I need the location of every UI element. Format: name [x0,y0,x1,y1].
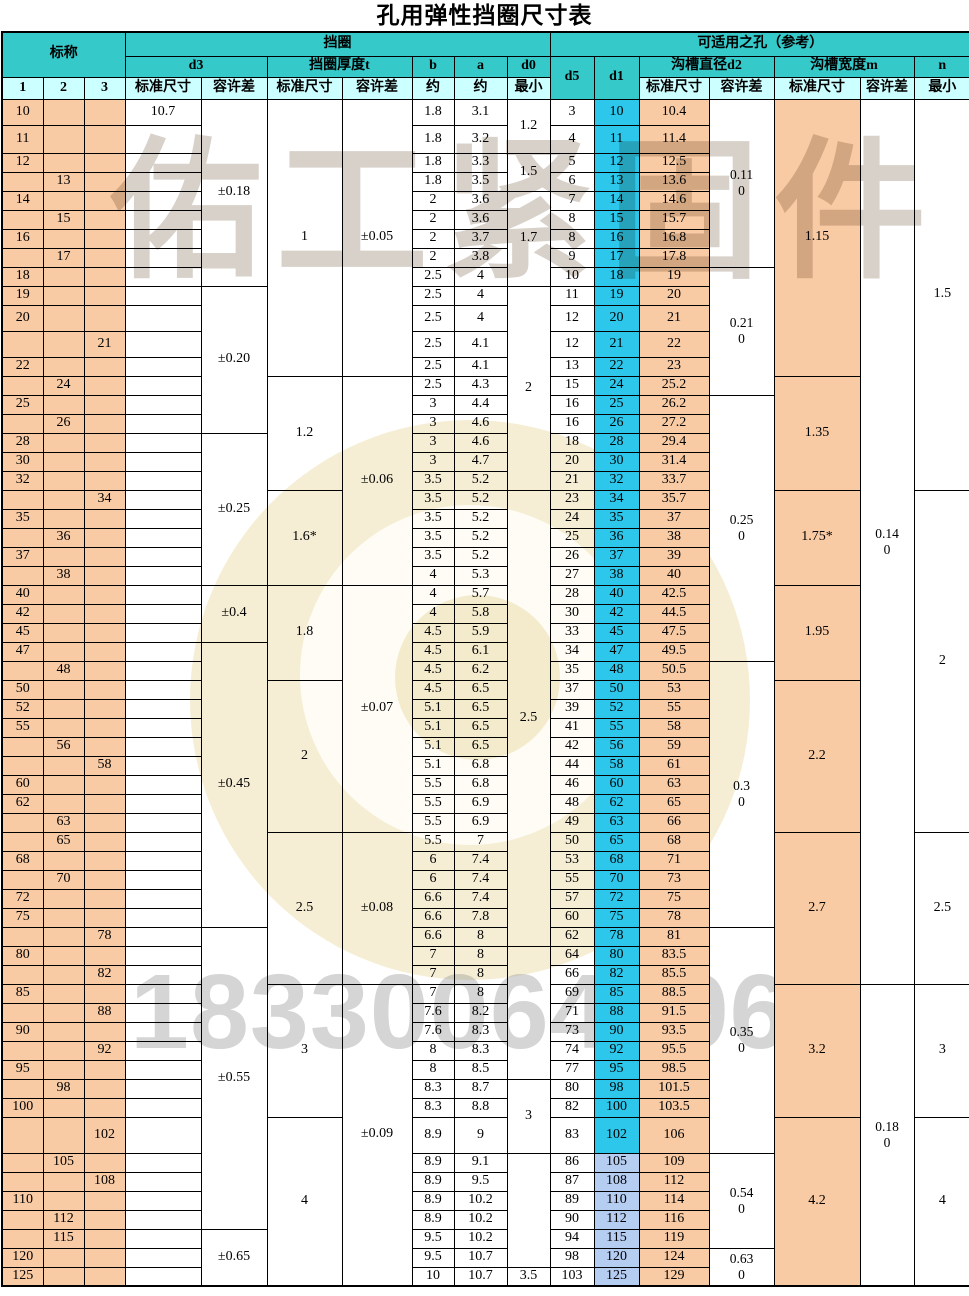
cell-a: 3.6 [454,210,507,229]
cell-a: 10.2 [454,1210,507,1229]
cell-a: 6.9 [454,794,507,813]
cell-d5: 82 [550,1098,594,1117]
cell-b: 8.9 [412,1153,454,1172]
cell-d3-tolerance: ±0.20 [201,286,267,433]
cell-d3-std [125,331,201,357]
cell-d5: 8 [550,229,594,248]
header-leaf-13: 容许差 [860,77,914,99]
cell-d2-std: 112 [639,1172,709,1191]
cell-d2-std: 16.8 [639,229,709,248]
cell-thickness-std: 3 [267,984,342,1117]
cell-nominal-3 [84,604,125,623]
cell-nominal-1: 35 [2,509,43,528]
cell-nominal-2 [43,604,84,623]
cell-d5: 49 [550,813,594,832]
header-leaf-7: 约 [412,77,454,99]
cell-b: 3 [412,433,454,452]
cell-d2-std: 73 [639,870,709,889]
cell-d2-std: 53 [639,680,709,699]
cell-d2-std: 20 [639,286,709,305]
cell-a: 6.5 [454,680,507,699]
cell-nominal-2 [43,946,84,965]
cell-d1: 11 [594,125,639,153]
cell-b: 2.5 [412,357,454,376]
cell-d0-min: 3 [507,1079,550,1153]
cell-nominal-1: 42 [2,604,43,623]
cell-m-std: 1.15 [774,99,860,376]
cell-d5: 25 [550,528,594,547]
header-sub-1: 挡圈厚度t [267,56,412,77]
cell-d2-tolerance: 0.35 0 [709,927,774,1153]
cell-d2-std: 63 [639,775,709,794]
cell-nominal-2 [43,699,84,718]
cell-b: 10 [412,1267,454,1286]
cell-nominal-3 [84,191,125,210]
cell-b: 3 [412,414,454,433]
cell-d1: 56 [594,737,639,756]
cell-nominal-2: 112 [43,1210,84,1229]
header-sub-6: d1 [594,56,639,99]
cell-d3-std [125,1210,201,1229]
cell-nominal-3 [84,775,125,794]
cell-d1: 34 [594,490,639,509]
cell-d2-std: 35.7 [639,490,709,509]
cell-d3-std [125,832,201,851]
header-leaf-14: 最小 [914,77,969,99]
cell-nominal-2 [43,433,84,452]
cell-d3-tolerance: ±0.18 [201,99,267,286]
cell-d3-std [125,528,201,547]
cell-nominal-1 [2,1229,43,1248]
cell-d3-std [125,1041,201,1060]
cell-thickness-tolerance: ±0.07 [342,585,412,832]
cell-d2-std: 129 [639,1267,709,1286]
cell-d3-std [125,1267,201,1286]
cell-a: 3.3 [454,153,507,172]
cell-nominal-3 [84,528,125,547]
cell-nominal-1: 120 [2,1248,43,1267]
cell-nominal-1: 85 [2,984,43,1003]
cell-nominal-1: 100 [2,1098,43,1117]
cell-d5: 10 [550,267,594,286]
cell-thickness-tolerance: ±0.09 [342,984,412,1286]
cell-b: 5.5 [412,813,454,832]
cell-d5: 42 [550,737,594,756]
cell-thickness-std: 1.8 [267,585,342,680]
cell-b: 3.5 [412,509,454,528]
cell-a: 4 [454,267,507,286]
cell-nominal-2 [43,984,84,1003]
cell-nominal-2 [43,1098,84,1117]
cell-nominal-1 [2,1079,43,1098]
header-leaf-8: 约 [454,77,507,99]
cell-nominal-3: 78 [84,927,125,946]
cell-d3-std [125,908,201,927]
cell-a: 3.8 [454,248,507,267]
cell-d3-std [125,870,201,889]
cell-d1: 82 [594,965,639,984]
cell-thickness-tolerance: ±0.06 [342,376,412,585]
cell-b: 6.6 [412,889,454,908]
header-leaf-4: 容许差 [201,77,267,99]
cell-b: 2 [412,191,454,210]
cell-d2-tolerance: 0.21 0 [709,267,774,395]
cell-d2-std: 59 [639,737,709,756]
cell-nominal-3 [84,1248,125,1267]
cell-nominal-2 [43,395,84,414]
cell-d2-std: 85.5 [639,965,709,984]
header-leaf-10: 标准尺寸 [639,77,709,99]
cell-nominal-2 [43,927,84,946]
cell-d5: 3 [550,99,594,125]
cell-b: 5.1 [412,699,454,718]
cell-a: 3.1 [454,99,507,125]
cell-m-std: 1.75* [774,490,860,585]
cell-nominal-1: 14 [2,191,43,210]
cell-d3-std [125,604,201,623]
cell-d1: 15 [594,210,639,229]
cell-d5: 41 [550,718,594,737]
cell-nominal-1 [2,813,43,832]
cell-nominal-2 [43,965,84,984]
cell-nominal-2 [43,490,84,509]
cell-n-min: 2.5 [914,832,969,984]
cell-d1: 98 [594,1079,639,1098]
cell-nominal-3 [84,566,125,585]
cell-a: 3.2 [454,125,507,153]
cell-nominal-1: 37 [2,547,43,566]
cell-d3-std [125,718,201,737]
cell-d5: 7 [550,191,594,210]
cell-d3-std [125,1003,201,1022]
cell-b: 7.6 [412,1022,454,1041]
cell-nominal-3 [84,718,125,737]
cell-b: 6.6 [412,927,454,946]
cell-d3-tolerance: ±0.65 [201,1229,267,1286]
cell-d3-std [125,191,201,210]
cell-a: 10.2 [454,1191,507,1210]
cell-nominal-3: 108 [84,1172,125,1191]
cell-a: 6.8 [454,775,507,794]
cell-d1: 65 [594,832,639,851]
cell-b: 3.5 [412,490,454,509]
cell-nominal-2 [43,1172,84,1191]
cell-nominal-2 [43,1003,84,1022]
cell-nominal-2 [43,286,84,305]
cell-d2-std: 10.4 [639,99,709,125]
cell-b: 9.5 [412,1248,454,1267]
cell-a: 4.1 [454,331,507,357]
cell-a: 6.5 [454,699,507,718]
cell-n-min: 1.5 [914,99,969,490]
cell-nominal-1 [2,1153,43,1172]
cell-d1: 102 [594,1117,639,1153]
cell-d5: 80 [550,1079,594,1098]
cell-d0-min: 3.5 [507,1267,550,1286]
cell-b: 8.3 [412,1079,454,1098]
cell-d2-tolerance: 0.25 0 [709,395,774,661]
cell-d2-std: 95.5 [639,1041,709,1060]
cell-m-tolerance: 0.14 0 [860,99,914,984]
cell-nominal-1 [2,172,43,191]
cell-b: 1.8 [412,125,454,153]
cell-nominal-2: 17 [43,248,84,267]
cell-nominal-3 [84,1098,125,1117]
cell-nominal-1: 50 [2,680,43,699]
cell-nominal-2: 24 [43,376,84,395]
cell-nominal-1: 60 [2,775,43,794]
cell-d1: 18 [594,267,639,286]
cell-nominal-2 [43,794,84,813]
cell-d2-std: 119 [639,1229,709,1248]
cell-nominal-3 [84,699,125,718]
cell-b: 4.5 [412,642,454,661]
cell-d5: 87 [550,1172,594,1191]
cell-nominal-1 [2,566,43,585]
cell-b: 8.3 [412,1098,454,1117]
cell-nominal-1 [2,832,43,851]
cell-nominal-1 [2,1172,43,1191]
cell-d1: 45 [594,623,639,642]
cell-b: 2 [412,210,454,229]
cell-a: 10.7 [454,1248,507,1267]
cell-d5: 5 [550,153,594,172]
table-row: 341.6*3.55.22.5233435.71.75*2 [2,490,969,509]
cell-d5: 83 [550,1117,594,1153]
cell-a: 7.4 [454,889,507,908]
cell-d3-std [125,1172,201,1191]
header-leaf-12: 标准尺寸 [774,77,860,99]
cell-b: 4.5 [412,680,454,699]
sheet: 18330064396 孔用弹性挡圈尺寸表 标称挡圈可适用之孔（参考）d3挡圈厚… [0,0,969,1296]
cell-b: 8.9 [412,1210,454,1229]
cell-d1: 60 [594,775,639,794]
cell-d2-tolerance: 0.3 0 [709,661,774,927]
cell-d2-std: 22 [639,331,709,357]
cell-m-std: 4.2 [774,1117,860,1286]
cell-d2-std: 103.5 [639,1098,709,1117]
cell-d0-min [507,1153,550,1267]
cell-a: 6.5 [454,718,507,737]
cell-nominal-1: 75 [2,908,43,927]
cell-nominal-3 [84,414,125,433]
cell-nominal-2: 15 [43,210,84,229]
cell-d5: 30 [550,604,594,623]
header-sub-7: 沟槽直径d2 [639,56,774,77]
cell-d2-std: 19 [639,267,709,286]
cell-d2-std: 44.5 [639,604,709,623]
cell-thickness-std: 1 [267,99,342,376]
cell-nominal-3 [84,737,125,756]
cell-a: 6.1 [454,642,507,661]
cell-nominal-2 [43,908,84,927]
cell-d3-std [125,414,201,433]
cell-d2-tolerance: 0.63 0 [709,1248,774,1286]
cell-b: 5.5 [412,794,454,813]
cell-d0-min: 2 [507,286,550,490]
cell-nominal-2 [43,680,84,699]
cell-d3-std [125,471,201,490]
cell-nominal-2 [43,775,84,794]
cell-nominal-2 [43,331,84,357]
cell-nominal-3 [84,661,125,680]
cell-nominal-3 [84,851,125,870]
cell-nominal-3 [84,376,125,395]
cell-nominal-3 [84,267,125,286]
cell-d3-std [125,566,201,585]
cell-nominal-1 [2,490,43,509]
header-sub-2: b [412,56,454,77]
cell-b: 8.9 [412,1191,454,1210]
cell-nominal-3 [84,889,125,908]
cell-nominal-3: 102 [84,1117,125,1153]
cell-nominal-3 [84,585,125,604]
cell-a: 6.9 [454,813,507,832]
cell-d2-std: 29.4 [639,433,709,452]
cell-b: 7.6 [412,1003,454,1022]
circlip-dimension-table: 标称挡圈可适用之孔（参考）d3挡圈厚度tbad0d5d1沟槽直径d2沟槽宽度mn… [1,31,969,1287]
cell-nominal-3 [84,286,125,305]
cell-nominal-1: 55 [2,718,43,737]
cell-nominal-3 [84,908,125,927]
cell-d1: 14 [594,191,639,210]
cell-d2-std: 37 [639,509,709,528]
cell-d5: 6 [550,172,594,191]
cell-d2-std: 14.6 [639,191,709,210]
cell-d3-std [125,267,201,286]
cell-d3-std [125,642,201,661]
cell-d5: 37 [550,680,594,699]
cell-d5: 27 [550,566,594,585]
cell-d2-std: 81 [639,927,709,946]
cell-d5: 77 [550,1060,594,1079]
cell-nominal-2 [43,267,84,286]
cell-b: 3.5 [412,547,454,566]
cell-d3-std [125,756,201,775]
cell-nominal-1 [2,756,43,775]
cell-d5: 34 [550,642,594,661]
cell-d5: 44 [550,756,594,775]
cell-nominal-3 [84,357,125,376]
cell-d5: 20 [550,452,594,471]
cell-d2-std: 31.4 [639,452,709,471]
cell-a: 5.7 [454,585,507,604]
cell-nominal-2: 13 [43,172,84,191]
cell-m-tolerance: 0.18 0 [860,984,914,1286]
cell-d5: 60 [550,908,594,927]
cell-a: 8 [454,946,507,965]
cell-b: 2.5 [412,267,454,286]
cell-d3-tolerance: ±0.55 [201,927,267,1229]
cell-nominal-3 [84,229,125,248]
cell-d5: 64 [550,946,594,965]
cell-d1: 17 [594,248,639,267]
cell-nominal-1 [2,661,43,680]
cell-d5: 50 [550,832,594,851]
cell-b: 1.8 [412,99,454,125]
cell-d5: 35 [550,661,594,680]
cell-d1: 75 [594,908,639,927]
cell-d5: 86 [550,1153,594,1172]
cell-d3-std [125,125,201,153]
cell-d2-std: 12.5 [639,153,709,172]
cell-b: 7 [412,946,454,965]
cell-d1: 80 [594,946,639,965]
cell-b: 4.5 [412,661,454,680]
cell-d5: 69 [550,984,594,1003]
cell-d3-std [125,1079,201,1098]
cell-nominal-2: 48 [43,661,84,680]
cell-d2-std: 61 [639,756,709,775]
cell-d1: 68 [594,851,639,870]
cell-a: 8.7 [454,1079,507,1098]
cell-a: 10.2 [454,1229,507,1248]
cell-d2-std: 40 [639,566,709,585]
cell-b: 1.8 [412,172,454,191]
cell-d2-std: 98.5 [639,1060,709,1079]
cell-nominal-2: 63 [43,813,84,832]
cell-nominal-2 [43,153,84,172]
table-row: 1010.7±0.181±0.051.83.11.231010.40.11 01… [2,99,969,125]
cell-a: 4.6 [454,433,507,452]
cell-d5: 26 [550,547,594,566]
cell-d2-std: 50.5 [639,661,709,680]
cell-d3-std [125,585,201,604]
header-group-1: 挡圈 [125,32,550,56]
cell-nominal-3 [84,623,125,642]
cell-nominal-3 [84,813,125,832]
cell-nominal-3 [84,1229,125,1248]
cell-d1: 19 [594,286,639,305]
header-leaf-3: 标准尺寸 [125,77,201,99]
header-sub-5: d5 [550,56,594,99]
cell-d3-std [125,286,201,305]
cell-d5: 9 [550,248,594,267]
cell-a: 5.3 [454,566,507,585]
cell-thickness-std: 1.2 [267,376,342,490]
cell-a: 4 [454,305,507,331]
cell-b: 2.5 [412,305,454,331]
cell-d3-std [125,1098,201,1117]
cell-nominal-2 [43,357,84,376]
cell-d5: 55 [550,870,594,889]
cell-b: 2.5 [412,376,454,395]
cell-thickness-std: 2.5 [267,832,342,984]
cell-d2-std: 88.5 [639,984,709,1003]
cell-a: 8 [454,927,507,946]
cell-thickness-std: 4 [267,1117,342,1286]
cell-a: 8.5 [454,1060,507,1079]
cell-b: 9.5 [412,1229,454,1248]
cell-b: 3 [412,395,454,414]
cell-nominal-1 [2,210,43,229]
cell-d1: 100 [594,1098,639,1117]
cell-d3-std [125,210,201,229]
cell-a: 4 [454,286,507,305]
cell-d3-std [125,357,201,376]
cell-d2-std: 83.5 [639,946,709,965]
cell-a: 5.2 [454,509,507,528]
cell-a: 5.9 [454,623,507,642]
cell-d1: 30 [594,452,639,471]
cell-d1: 47 [594,642,639,661]
cell-n-min: 3 [914,984,969,1117]
cell-nominal-2: 38 [43,566,84,585]
cell-d2-std: 33.7 [639,471,709,490]
cell-nominal-3 [84,99,125,125]
cell-a: 4.3 [454,376,507,395]
cell-b: 8.9 [412,1117,454,1153]
